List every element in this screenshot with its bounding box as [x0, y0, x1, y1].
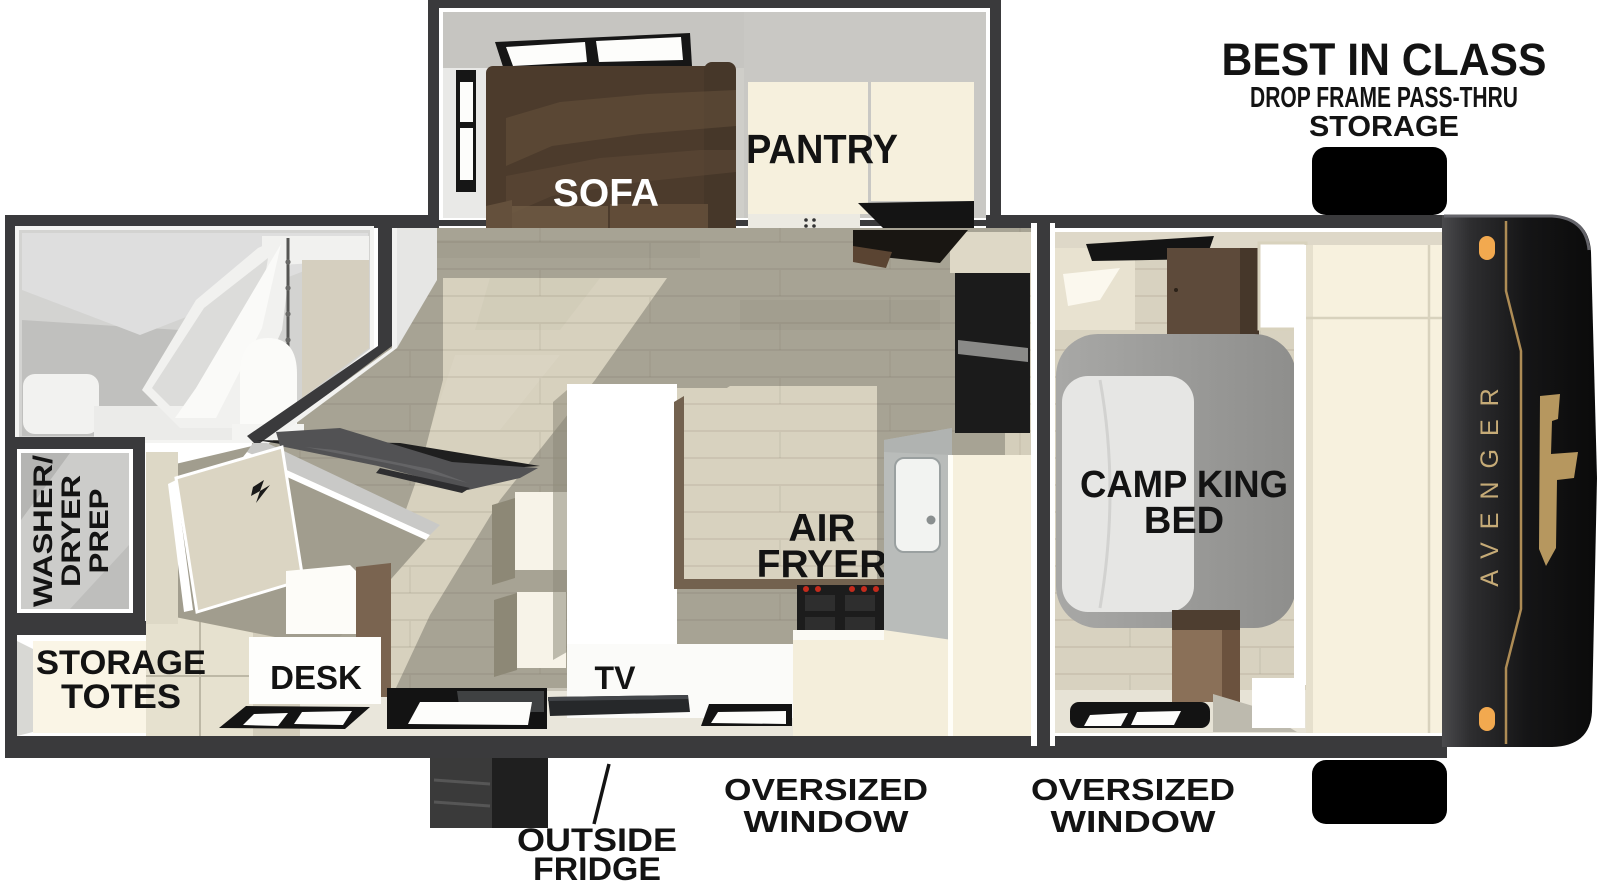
svg-text:DESK: DESK	[270, 659, 362, 696]
svg-text:WINDOW: WINDOW	[744, 804, 910, 839]
svg-text:AVENGER: AVENGER	[1476, 375, 1504, 586]
svg-text:OVERSIZED: OVERSIZED	[724, 772, 928, 807]
svg-text:PREP: PREP	[84, 489, 114, 574]
svg-text:STORAGE: STORAGE	[1309, 111, 1459, 143]
svg-text:TOTES: TOTES	[61, 678, 181, 716]
svg-text:FRYER: FRYER	[757, 543, 888, 586]
svg-text:BEST IN CLASS: BEST IN CLASS	[1222, 34, 1547, 85]
svg-text:WASHER/: WASHER/	[28, 454, 58, 607]
svg-text:SOFA: SOFA	[553, 172, 659, 215]
svg-text:BED: BED	[1144, 500, 1224, 542]
svg-text:WINDOW: WINDOW	[1051, 804, 1217, 839]
svg-text:DRYER: DRYER	[56, 475, 86, 587]
svg-text:STORAGE: STORAGE	[36, 644, 206, 682]
svg-text:OVERSIZED: OVERSIZED	[1031, 772, 1235, 807]
svg-text:PANTRY: PANTRY	[746, 126, 898, 172]
svg-text:DROP FRAME PASS-THRU: DROP FRAME PASS-THRU	[1250, 82, 1518, 114]
svg-text:TV: TV	[595, 660, 637, 696]
svg-text:FRIDGE: FRIDGE	[533, 851, 661, 882]
